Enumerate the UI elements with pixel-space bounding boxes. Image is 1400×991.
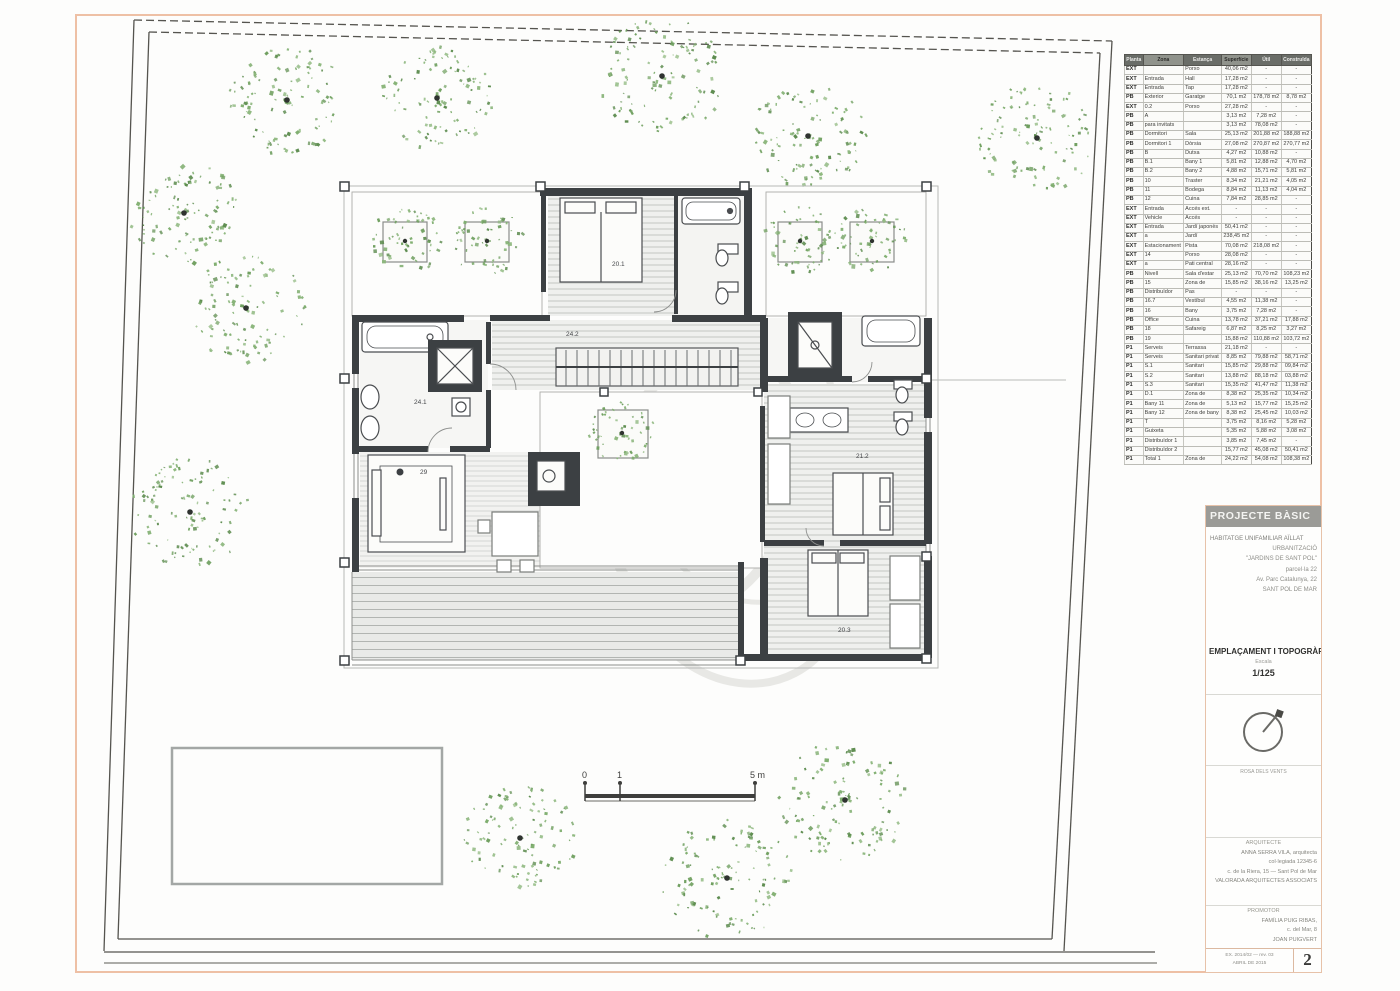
schedule-cell: 15,77 m2 — [1221, 446, 1251, 455]
schedule-cell: 110,88 m2 — [1251, 335, 1281, 344]
schedule-cell: 8,25 m2 — [1251, 325, 1281, 334]
tree — [195, 256, 307, 365]
schedule-cell — [1184, 335, 1222, 344]
schedule-cell: - — [1281, 121, 1311, 130]
schedule-cell: 18 — [1143, 325, 1184, 334]
schedule-cell: P1 — [1125, 446, 1144, 455]
schedule-row: PBDormitoriSala25,13 m2201,88 m2188,88 m… — [1125, 130, 1312, 139]
schedule-cell: 238,45 m2 — [1221, 233, 1251, 242]
empty-panel — [1206, 777, 1321, 838]
schedule-cell: 10,03 m2 — [1281, 409, 1311, 418]
schedule-row: P1Bany 11Zona de5,13 m215,77 m215,25 m2 — [1125, 400, 1312, 409]
schedule-cell: 8,84 m2 — [1221, 186, 1251, 195]
schedule-cell: Tap — [1184, 84, 1222, 93]
footer-line: EX. 2014/02 — rev. 03 — [1206, 952, 1293, 960]
schedule-cell: Dòrsia — [1184, 140, 1222, 149]
schedule-cell: PB — [1125, 195, 1144, 204]
schedule-cell: 0.2 — [1143, 103, 1184, 112]
schedule-cell: Safareig — [1184, 325, 1222, 334]
schedule-cell: Zona de — [1184, 390, 1222, 399]
room-label: 21.2 — [856, 453, 869, 460]
schedule-cell: 15,88 m2 — [1221, 335, 1251, 344]
schedule-cell: 5,81 m2 — [1281, 168, 1311, 177]
schedule-cell: Porxo — [1184, 103, 1222, 112]
schedule-cell: 17,88 m2 — [1281, 316, 1311, 325]
schedule-row: PBDistribuïdorPas--- — [1125, 288, 1312, 297]
north-caption: ROSA DELS VENTS — [1206, 765, 1321, 777]
schedule-cell: PB — [1125, 112, 1144, 121]
schedule-cell: EXT — [1125, 66, 1144, 75]
schedule-row: P1T3,75 m28,16 m25,28 m2 — [1125, 418, 1312, 427]
tree — [130, 164, 237, 266]
schedule-row: PB10Traster8,34 m221,21 m24,05 m2 — [1125, 177, 1312, 186]
schedule-cell: Total 1 — [1143, 455, 1184, 464]
scale-label: Escala — [1206, 659, 1321, 668]
divider — [1206, 681, 1321, 695]
schedule-cell — [1184, 427, 1222, 436]
schedule-cell: 3,13 m2 — [1221, 112, 1251, 121]
schedule-cell: - — [1221, 205, 1251, 214]
schedule-cell: Accés ext. — [1184, 205, 1222, 214]
schedule-cell: a — [1143, 260, 1184, 269]
schedule-row: PBBDutxa4,27 m210,88 m2- — [1125, 149, 1312, 158]
schedule-row: EXTaJardí238,45 m2-- — [1125, 233, 1312, 242]
schedule-header-cell: Construïda — [1281, 55, 1311, 66]
schedule-cell: Sanitari — [1184, 363, 1222, 372]
schedule-row: PB15Zona de15,85 m238,16 m213,25 m2 — [1125, 279, 1312, 288]
schedule-cell: Serveis — [1143, 353, 1184, 362]
architect-line: VALORADA ARQUITECTES ASSOCIATS — [1210, 877, 1317, 886]
schedule-cell: Dutxa — [1184, 149, 1222, 158]
schedule-cell: 28,85 m2 — [1251, 195, 1281, 204]
schedule-cell: 28,16 m2 — [1221, 260, 1251, 269]
schedule-cell: EXT — [1125, 214, 1144, 223]
schedule-cell: 3,75 m2 — [1221, 307, 1251, 316]
schedule-cell: PB — [1125, 149, 1144, 158]
schedule-cell: - — [1281, 195, 1311, 204]
bed-right-b — [808, 550, 868, 616]
schedule-row: P1Guixeta5,35 m25,88 m23,08 m2 — [1125, 427, 1312, 436]
schedule-row: PB12Cuina7,84 m228,85 m2- — [1125, 195, 1312, 204]
schedule-cell: 5,81 m2 — [1221, 158, 1251, 167]
schedule-cell: 10,88 m2 — [1251, 149, 1281, 158]
schedule-cell: 270,87 m2 — [1251, 140, 1281, 149]
schedule-cell: PB — [1125, 335, 1144, 344]
schedule-cell: 13,25 m2 — [1281, 279, 1311, 288]
schedule-cell: Bany 1 — [1184, 158, 1222, 167]
schedule-cell: Entrada — [1143, 84, 1184, 93]
schedule-cell: Office — [1143, 316, 1184, 325]
schedule-cell: S.1 — [1143, 363, 1184, 372]
schedule-cell: 15,25 m2 — [1281, 400, 1311, 409]
promoter-section: PROMOTOR FAMÍLIA PUIG RIBAS,c. del Mar, … — [1206, 906, 1321, 953]
schedule-row: P1ServeisSanitari privat8,85 m279,88 m25… — [1125, 353, 1312, 362]
schedule-row: PB16Bany3,75 m27,28 m2- — [1125, 307, 1312, 316]
schedule-cell: PB — [1125, 186, 1144, 195]
schedule-row: P1Total 1Zona de24,22 m254,08 m2108,38 m… — [1125, 455, 1312, 464]
bed-master — [368, 455, 465, 552]
schedule-cell: EXT — [1125, 84, 1144, 93]
house-plan: 20.124.224.12921.220.3 — [340, 182, 1066, 668]
schedule-cell: PB — [1125, 279, 1144, 288]
schedule-cell: Bany 11 — [1143, 400, 1184, 409]
schedule-cell: PB — [1125, 158, 1144, 167]
schedule-cell: 3,27 m2 — [1281, 325, 1311, 334]
schedule-cell: - — [1281, 260, 1311, 269]
schedule-row: PBDormitori 1Dòrsia27,08 m2270,87 m2270,… — [1125, 140, 1312, 149]
schedule-row: P1S.2Sanitari13,88 m288,18 m203,88 m2 — [1125, 372, 1312, 381]
architect-line: c. de la Riera, 15 — Sant Pol de Mar — [1210, 868, 1317, 877]
schedule-cell: 27,08 m2 — [1221, 140, 1251, 149]
schedule-cell: PB — [1125, 130, 1144, 139]
schedule-cell: Guixeta — [1143, 427, 1184, 436]
scalebar-tick-1: 1 — [617, 770, 622, 780]
schedule-cell: 13,88 m2 — [1221, 372, 1251, 381]
schedule-row: EXT14Porxo28,08 m2-- — [1125, 251, 1312, 260]
schedule-cell: 108,38 m2 — [1281, 455, 1311, 464]
schedule-cell: 108,23 m2 — [1281, 270, 1311, 279]
schedule-cell: - — [1251, 260, 1281, 269]
schedule-row: EXTEntradaJardí japonès50,41 m2-- — [1125, 223, 1312, 232]
schedule-cell: 4,05 m2 — [1281, 177, 1311, 186]
tree — [663, 819, 793, 938]
schedule-cell: Serveis — [1143, 344, 1184, 353]
drawing-title: EMPLAÇAMENT I TOPOGRÀFIC — [1206, 645, 1321, 659]
tree — [777, 746, 906, 861]
schedule-cell: - — [1281, 75, 1311, 84]
architect-label: ARQUITECTE — [1210, 840, 1317, 846]
schedule-cell: 29,88 m2 — [1251, 363, 1281, 372]
schedule-cell: Cuina — [1184, 316, 1222, 325]
room-label: 29 — [420, 469, 428, 476]
room-label: 20.3 — [838, 627, 851, 634]
tree — [602, 20, 719, 132]
schedule-cell: 15,71 m2 — [1251, 168, 1281, 177]
schedule-body: EXTPorxo40,06 m2--EXTEntradaHall17,28 m2… — [1125, 66, 1312, 465]
schedule-cell: - — [1251, 223, 1281, 232]
schedule-cell: - — [1281, 298, 1311, 307]
schedule-cell: PB — [1125, 270, 1144, 279]
schedule-cell: 7,28 m2 — [1251, 112, 1281, 121]
schedule-row: PB11Bodega8,84 m211,13 m24,04 m2 — [1125, 186, 1312, 195]
schedule-cell: Distribuïdor — [1143, 288, 1184, 297]
schedule-cell: PB — [1125, 121, 1144, 130]
schedule-cell: PB — [1125, 168, 1144, 177]
schedule-row: P1ServeisTerrassa21,18 m2-- — [1125, 344, 1312, 353]
schedule-cell: - — [1221, 288, 1251, 297]
schedule-cell: 45,08 m2 — [1251, 446, 1281, 455]
schedule-row: PBNivellSala d'estar25,13 m270,70 m2108,… — [1125, 270, 1312, 279]
footer-text: EX. 2014/02 — rev. 03ABRIL DE 2015 — [1206, 949, 1293, 972]
schedule-cell: Sanitari privat — [1184, 353, 1222, 362]
schedule-cell: Distribuïdor 2 — [1143, 446, 1184, 455]
room-label: 24.2 — [566, 331, 579, 338]
schedule-cell: EXT — [1125, 233, 1144, 242]
schedule-cell: Porxo — [1184, 251, 1222, 260]
schedule-cell: D.1 — [1143, 390, 1184, 399]
schedule-cell: - — [1281, 84, 1311, 93]
schedule-cell: 25,45 m2 — [1251, 409, 1281, 418]
schedule-cell: 25,13 m2 — [1221, 130, 1251, 139]
schedule-cell: 15,35 m2 — [1221, 381, 1251, 390]
schedule-cell: 4,04 m2 — [1281, 186, 1311, 195]
schedule-cell: 270,77 m2 — [1281, 140, 1311, 149]
schedule-cell: Traster — [1184, 177, 1222, 186]
schedule-cell: 3,08 m2 — [1281, 427, 1311, 436]
schedule-cell: Garatge — [1184, 93, 1222, 102]
room-label: 24.1 — [414, 399, 427, 406]
schedule-cell: 14 — [1143, 251, 1184, 260]
project-line: URBANITZACIÓ — [1210, 544, 1317, 554]
schedule-cell: Bany 2 — [1184, 168, 1222, 177]
schedule-header-row: PlantaZonaEstançaSuperfícieÚtilConstruïd… — [1125, 55, 1312, 66]
schedule-cell: - — [1221, 214, 1251, 223]
schedule-cell: PB — [1125, 140, 1144, 149]
schedule-cell — [1184, 437, 1222, 446]
schedule-header-cell: Zona — [1143, 55, 1184, 66]
schedule-cell: 27,28 m2 — [1221, 103, 1251, 112]
schedule-cell: 24,22 m2 — [1221, 455, 1251, 464]
schedule-cell: 88,18 m2 — [1251, 372, 1281, 381]
project-line: HABITATGE UNIFAMILIAR AÏLLAT — [1210, 534, 1317, 544]
schedule-cell: Estacionament — [1143, 242, 1184, 251]
schedule-cell: Zona de — [1184, 279, 1222, 288]
north-arrow — [1206, 695, 1321, 765]
schedule-cell: P1 — [1125, 353, 1144, 362]
schedule-cell: Jardí japonès — [1184, 223, 1222, 232]
project-info: HABITATGE UNIFAMILIAR AÏLLATURBANITZACIÓ… — [1206, 527, 1321, 645]
schedule-cell: - — [1281, 251, 1311, 260]
schedule-cell: 25,35 m2 — [1251, 390, 1281, 399]
tree — [229, 48, 335, 155]
schedule-cell: Zona de — [1184, 400, 1222, 409]
schedule-cell: B — [1143, 149, 1184, 158]
schedule-cell: - — [1281, 307, 1311, 316]
schedule-cell: EXT — [1125, 75, 1144, 84]
schedule-cell: 15,85 m2 — [1221, 279, 1251, 288]
schedule-cell: Sala d'estar — [1184, 270, 1222, 279]
schedule-cell: P1 — [1125, 437, 1144, 446]
schedule-cell: EXT — [1125, 260, 1144, 269]
schedule-cell: 25,13 m2 — [1221, 270, 1251, 279]
schedule-cell: P1 — [1125, 418, 1144, 427]
schedule-cell: 17,28 m2 — [1221, 75, 1251, 84]
schedule-cell: Bany 12 — [1143, 409, 1184, 418]
schedule-cell: Hall — [1184, 75, 1222, 84]
schedule-row: PB1915,88 m2110,88 m2103,72 m2 — [1125, 335, 1312, 344]
schedule-cell: 12 — [1143, 195, 1184, 204]
schedule-cell: 6,87 m2 — [1221, 325, 1251, 334]
tree — [464, 786, 576, 890]
schedule-cell: 5,88 m2 — [1251, 427, 1281, 436]
project-line: parcel·la 22 — [1210, 565, 1317, 575]
schedule-cell: 78,08 m2 — [1251, 121, 1281, 130]
schedule-cell: 15,85 m2 — [1221, 363, 1251, 372]
schedule-cell: 5,28 m2 — [1281, 418, 1311, 427]
schedule-cell: P1 — [1125, 372, 1144, 381]
scale-value: 1/125 — [1206, 668, 1321, 681]
schedule-cell: P1 — [1125, 427, 1144, 436]
schedule-header-cell: Estança — [1184, 55, 1222, 66]
schedule-cell: Vestíbul — [1184, 298, 1222, 307]
schedule-cell: Jardí — [1184, 233, 1222, 242]
schedule-row: P1S.3Sanitari15,35 m241,47 m211,38 m2 — [1125, 381, 1312, 390]
schedule-cell: P1 — [1125, 409, 1144, 418]
schedule-cell: Entrada — [1143, 223, 1184, 232]
schedule-cell: 15 — [1143, 279, 1184, 288]
schedule-cell: P1 — [1125, 400, 1144, 409]
schedule-cell: 3,75 m2 — [1221, 418, 1251, 427]
schedule-cell: - — [1281, 149, 1311, 158]
schedule-cell: 178,78 m2 — [1251, 93, 1281, 102]
pool — [172, 748, 442, 884]
schedule-cell: Exterior — [1143, 93, 1184, 102]
schedule-cell: Dormitori 1 — [1143, 140, 1184, 149]
promoter-line: FAMÍLIA PUIG RIBAS, — [1210, 917, 1317, 926]
schedule-row: EXTaPati central28,16 m2-- — [1125, 260, 1312, 269]
schedule-header-cell: Superfície — [1221, 55, 1251, 66]
schedule-cell: P1 — [1125, 363, 1144, 372]
schedule-cell: P1 — [1125, 344, 1144, 353]
schedule-row: PB16.7Vestíbul4,55 m211,38 m2- — [1125, 298, 1312, 307]
scale-bar: 0 1 5 m — [582, 770, 765, 801]
schedule-cell: Distribuïdor 1 — [1143, 437, 1184, 446]
schedule-cell: 40,06 m2 — [1221, 66, 1251, 75]
schedule-cell: Pas — [1184, 288, 1222, 297]
schedule-row: PBA3,13 m27,28 m2- — [1125, 112, 1312, 121]
schedule-cell: 16.7 — [1143, 298, 1184, 307]
schedule-row: PB18Safareig6,87 m28,25 m23,27 m2 — [1125, 325, 1312, 334]
schedule-cell: 15,77 m2 — [1251, 400, 1281, 409]
schedule-cell: 17,28 m2 — [1221, 84, 1251, 93]
schedule-row: PBB.2Bany 24,88 m215,71 m25,81 m2 — [1125, 168, 1312, 177]
schedule-cell: - — [1281, 223, 1311, 232]
bed-right-a — [833, 473, 893, 535]
schedule-cell: Vehicle — [1143, 214, 1184, 223]
schedule-cell: 41,47 m2 — [1251, 381, 1281, 390]
schedule-row: P1D.1Zona de8,38 m225,35 m210,34 m2 — [1125, 390, 1312, 399]
schedule-cell: 79,88 m2 — [1251, 353, 1281, 362]
schedule-cell: B.1 — [1143, 158, 1184, 167]
architect-line: col·legiada 12345-6 — [1210, 858, 1317, 867]
schedule-cell: 3,85 m2 — [1221, 437, 1251, 446]
schedule-cell: Terrassa — [1184, 344, 1222, 353]
schedule-cell: PB — [1125, 307, 1144, 316]
schedule-cell — [1184, 446, 1222, 455]
schedule-cell: P1 — [1125, 455, 1144, 464]
schedule-cell: - — [1251, 205, 1281, 214]
schedule-cell: - — [1251, 233, 1281, 242]
schedule-cell: - — [1251, 288, 1281, 297]
schedule-cell: 7,84 m2 — [1221, 195, 1251, 204]
project-line: SANT POL DE MAR — [1210, 585, 1317, 595]
room-schedule: PlantaZonaEstançaSuperfícieÚtilConstruïd… — [1124, 54, 1312, 465]
schedule-cell: 16 — [1143, 307, 1184, 316]
promoter-line: c. del Mar, 8 — [1210, 926, 1317, 935]
project-line: "JARDINS DE SANT POL" — [1210, 554, 1317, 564]
promoter-line: JOAN PUIGVERT — [1210, 936, 1317, 945]
schedule-cell: 8,85 m2 — [1221, 353, 1251, 362]
promoter-label: PROMOTOR — [1210, 908, 1317, 914]
schedule-cell: 4,70 m2 — [1281, 158, 1311, 167]
schedule-cell: Pista — [1184, 242, 1222, 251]
schedule-header-cell: Útil — [1251, 55, 1281, 66]
schedule-cell: Pati central — [1184, 260, 1222, 269]
schedule-cell: 11 — [1143, 186, 1184, 195]
schedule-cell: 103,72 m2 — [1281, 335, 1311, 344]
schedule-cell: 11,13 m2 — [1251, 186, 1281, 195]
schedule-cell: EXT — [1125, 251, 1144, 260]
drawing-sheet: 20.124.224.12921.220.3 0 1 5 m — [0, 0, 1400, 991]
schedule-cell: 7,45 m2 — [1251, 437, 1281, 446]
schedule-cell: - — [1251, 84, 1281, 93]
schedule-cell: Zona de — [1184, 455, 1222, 464]
schedule-cell: EXT — [1125, 103, 1144, 112]
schedule-cell: - — [1251, 344, 1281, 353]
schedule-cell: - — [1251, 66, 1281, 75]
schedule-cell: Accés — [1184, 214, 1222, 223]
schedule-cell: 70,70 m2 — [1251, 270, 1281, 279]
schedule-cell: 21,21 m2 — [1251, 177, 1281, 186]
schedule-cell: Cuina — [1184, 195, 1222, 204]
schedule-cell: Porxo — [1184, 66, 1222, 75]
schedule-cell — [1143, 66, 1184, 75]
schedule-row: PBB.1Bany 15,81 m212,88 m24,70 m2 — [1125, 158, 1312, 167]
schedule-row: PBOfficeCuina13,78 m237,21 m217,88 m2 — [1125, 316, 1312, 325]
schedule-row: PBExteriorGaratge70,1 m2178,78 m28,78 m2 — [1125, 93, 1312, 102]
schedule-cell: 5,13 m2 — [1221, 400, 1251, 409]
tree — [381, 45, 493, 149]
schedule-cell: - — [1251, 214, 1281, 223]
project-line: Av. Parc Catalunya, 22 — [1210, 575, 1317, 585]
schedule-cell: 4,55 m2 — [1221, 298, 1251, 307]
tree — [978, 87, 1089, 189]
schedule-cell: - — [1281, 242, 1311, 251]
sheet-number: 2 — [1293, 949, 1321, 972]
schedule-cell: 4,27 m2 — [1221, 149, 1251, 158]
schedule-cell: PB — [1125, 325, 1144, 334]
schedule-cell: Zona de bany — [1184, 409, 1222, 418]
schedule-cell: - — [1251, 75, 1281, 84]
schedule-cell: 19 — [1143, 335, 1184, 344]
schedule-row: EXTEstacionamentPista70,08 m2218,08 m2- — [1125, 242, 1312, 251]
schedule-row: EXTVehicleAccés--- — [1125, 214, 1312, 223]
schedule-cell: 28,08 m2 — [1221, 251, 1251, 260]
schedule-cell: 201,88 m2 — [1251, 130, 1281, 139]
schedule-cell: EXT — [1125, 242, 1144, 251]
schedule-row: EXTEntradaAccés ext.--- — [1125, 205, 1312, 214]
footer-line: ABRIL DE 2015 — [1206, 960, 1293, 968]
schedule-row: P1Distribuïdor 215,77 m245,08 m250,41 m2 — [1125, 446, 1312, 455]
promoter-lines: FAMÍLIA PUIG RIBAS,c. del Mar, 8JOAN PUI… — [1210, 917, 1317, 945]
schedule-cell: 218,08 m2 — [1251, 242, 1281, 251]
schedule-cell: 09,84 m2 — [1281, 363, 1311, 372]
schedule-cell: - — [1281, 112, 1311, 121]
schedule-cell: T — [1143, 418, 1184, 427]
schedule-cell: - — [1281, 205, 1311, 214]
schedule-cell: PB — [1125, 288, 1144, 297]
schedule-row: P1Distribuïdor 13,85 m27,45 m2- — [1125, 437, 1312, 446]
schedule-cell: 7,28 m2 — [1251, 307, 1281, 316]
schedule-cell: Sanitari — [1184, 381, 1222, 390]
schedule-cell: a — [1143, 233, 1184, 242]
titleblock-footer: EX. 2014/02 — rev. 03ABRIL DE 2015 2 — [1206, 948, 1321, 972]
tree — [755, 88, 868, 187]
schedule-cell: P1 — [1125, 390, 1144, 399]
tree — [132, 458, 249, 566]
schedule-cell — [1184, 121, 1222, 130]
schedule-cell: 12,88 m2 — [1251, 158, 1281, 167]
